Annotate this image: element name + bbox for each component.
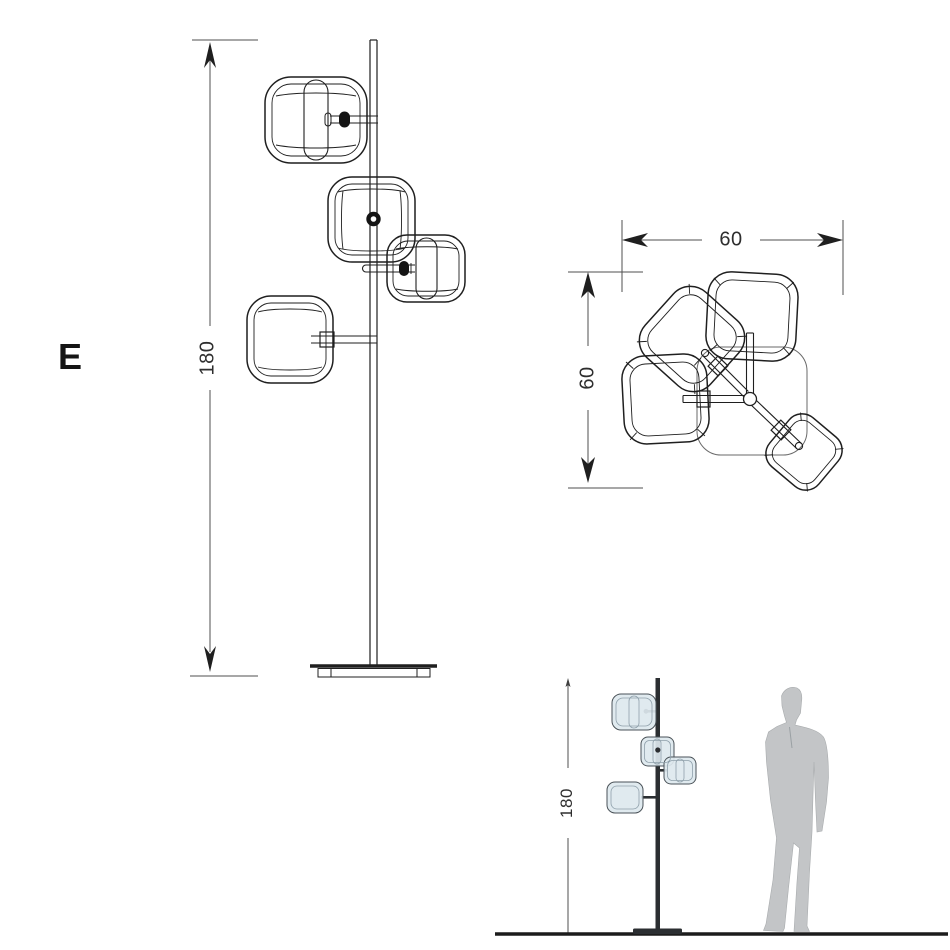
front-shade-2 [328, 177, 415, 262]
front-base [310, 666, 437, 677]
front-shade-1 [265, 77, 378, 163]
top-shade-southeast-diamond [759, 407, 849, 497]
scale-height-dimension-label: 180 [557, 786, 577, 820]
front-height-dimension-label: 180 [197, 338, 220, 379]
front-shade-4 [247, 296, 377, 383]
top-width-dimension-label: 60 [716, 229, 745, 252]
lamp-technical-drawing [0, 0, 950, 950]
top-depth-dimension-label: 60 [577, 363, 600, 392]
technical-drawing-page: E 180 60 60 180 [0, 0, 950, 950]
top-shade-north [705, 271, 799, 363]
human-silhouette [764, 687, 829, 931]
top-shade-west-diamond [630, 277, 754, 401]
front-pole [370, 40, 377, 665]
scale-lamp [607, 678, 696, 934]
front-elevation-view [190, 40, 465, 677]
variant-label: E [58, 336, 82, 378]
top-plan-view [568, 220, 849, 497]
